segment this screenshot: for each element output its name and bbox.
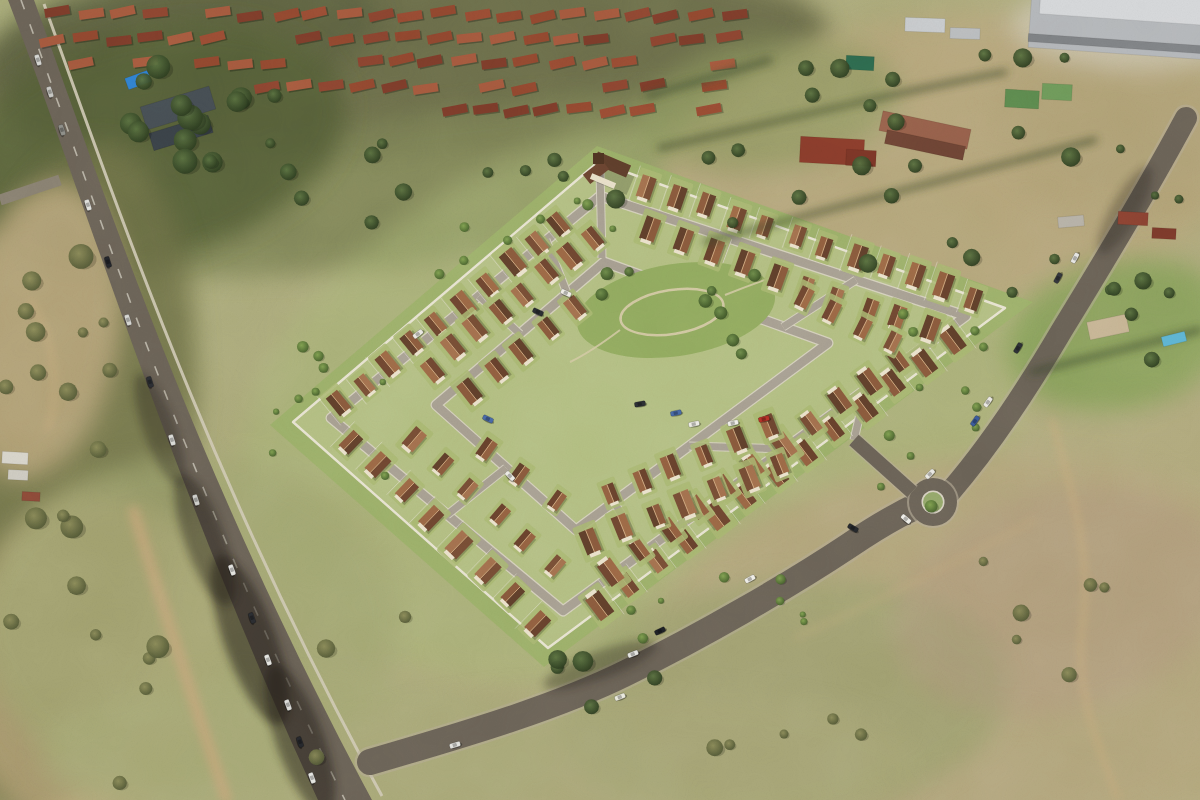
aerial-render-figure <box>0 0 1200 800</box>
aerial-estate-render <box>0 0 1200 800</box>
